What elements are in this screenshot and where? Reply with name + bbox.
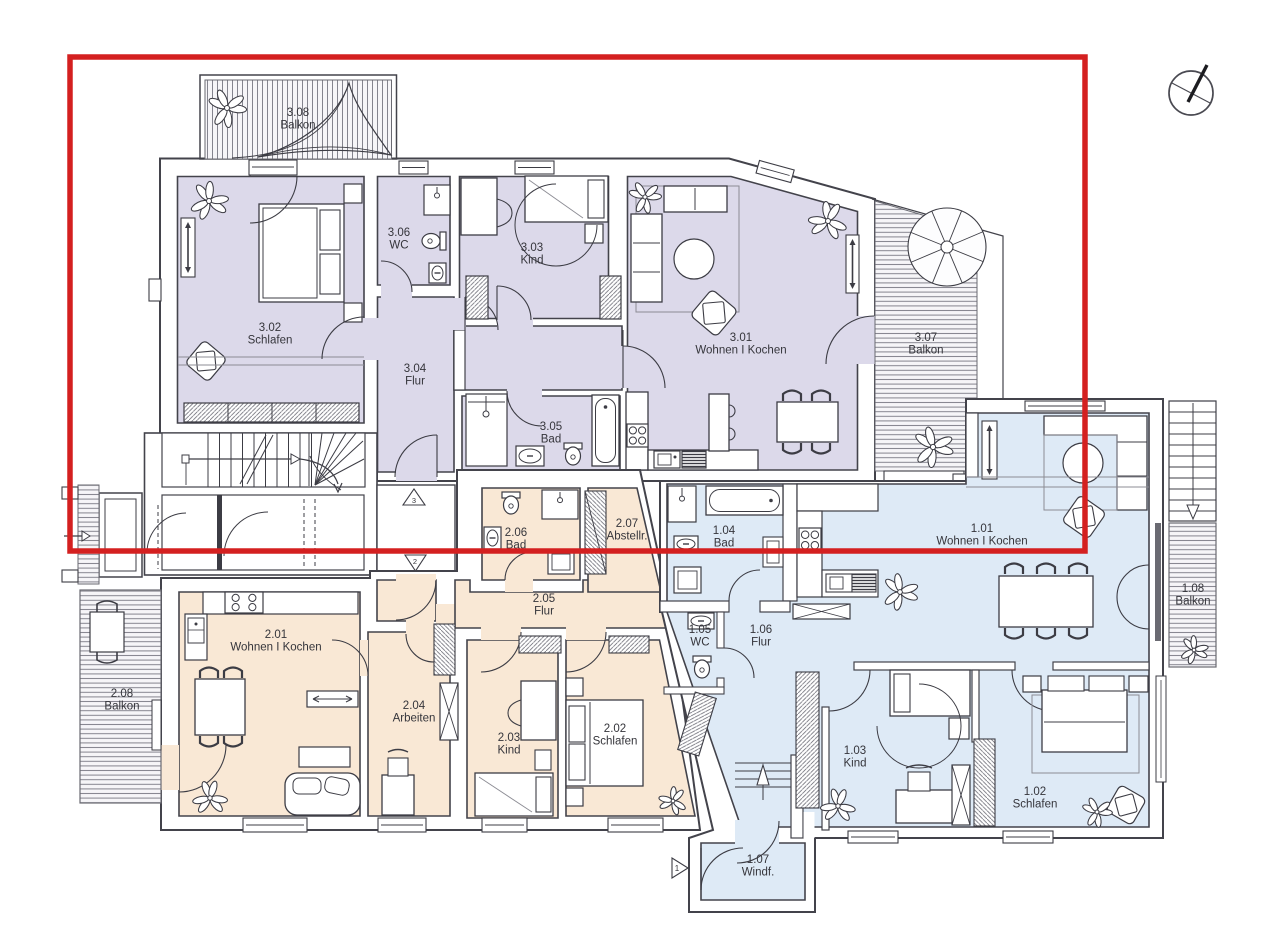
svg-text:2.03: 2.03 [498,732,520,744]
svg-text:Bad: Bad [541,434,561,446]
svg-text:Kind: Kind [520,255,543,267]
svg-text:3.05: 3.05 [540,421,562,433]
svg-text:3.07: 3.07 [915,332,937,344]
svg-text:2.02: 2.02 [604,723,626,735]
svg-text:2.01: 2.01 [265,629,287,641]
svg-text:Schlafen: Schlafen [593,736,638,748]
svg-text:Flur: Flur [751,637,771,649]
svg-text:1.03: 1.03 [844,745,866,757]
svg-text:WC: WC [690,637,709,649]
svg-text:Balkon: Balkon [104,701,139,713]
svg-text:Balkon: Balkon [1175,596,1210,608]
svg-text:3: 3 [412,496,416,505]
svg-text:1.05: 1.05 [689,624,711,636]
svg-text:1.02: 1.02 [1024,786,1046,798]
svg-text:2.05: 2.05 [533,593,555,605]
svg-text:Balkon: Balkon [280,120,315,132]
svg-text:1.06: 1.06 [750,624,772,636]
svg-text:Abstellr.: Abstellr. [607,531,648,543]
svg-text:2.07: 2.07 [616,518,638,530]
svg-text:2.06: 2.06 [505,527,527,539]
svg-text:3.08: 3.08 [287,107,309,119]
svg-text:Balkon: Balkon [908,345,943,357]
svg-text:1.07: 1.07 [747,854,769,866]
svg-text:Wohnen I Kochen: Wohnen I Kochen [936,536,1027,548]
svg-text:3.02: 3.02 [259,322,281,334]
svg-text:Schlafen: Schlafen [248,335,293,347]
svg-text:Wohnen I Kochen: Wohnen I Kochen [695,345,786,357]
svg-text:Flur: Flur [534,606,554,618]
svg-text:Bad: Bad [714,538,734,550]
svg-text:Windf.: Windf. [742,867,775,879]
svg-text:1.08: 1.08 [1182,583,1204,595]
svg-text:3.03: 3.03 [521,242,543,254]
svg-text:Schlafen: Schlafen [1013,799,1058,811]
svg-text:Flur: Flur [405,376,425,388]
svg-text:1: 1 [675,864,680,873]
svg-text:3.04: 3.04 [404,363,427,375]
svg-text:2.08: 2.08 [111,688,133,700]
svg-text:Kind: Kind [497,745,520,757]
svg-text:Wohnen I Kochen: Wohnen I Kochen [230,642,321,654]
svg-text:2: 2 [413,557,417,566]
svg-text:1.01: 1.01 [971,523,993,535]
svg-text:3.01: 3.01 [730,332,752,344]
svg-text:1.04: 1.04 [713,525,736,537]
svg-text:Kind: Kind [843,758,866,770]
svg-text:3.06: 3.06 [388,227,410,239]
svg-text:WC: WC [389,240,408,252]
svg-text:2.04: 2.04 [403,700,426,712]
svg-text:Arbeiten: Arbeiten [393,713,436,725]
